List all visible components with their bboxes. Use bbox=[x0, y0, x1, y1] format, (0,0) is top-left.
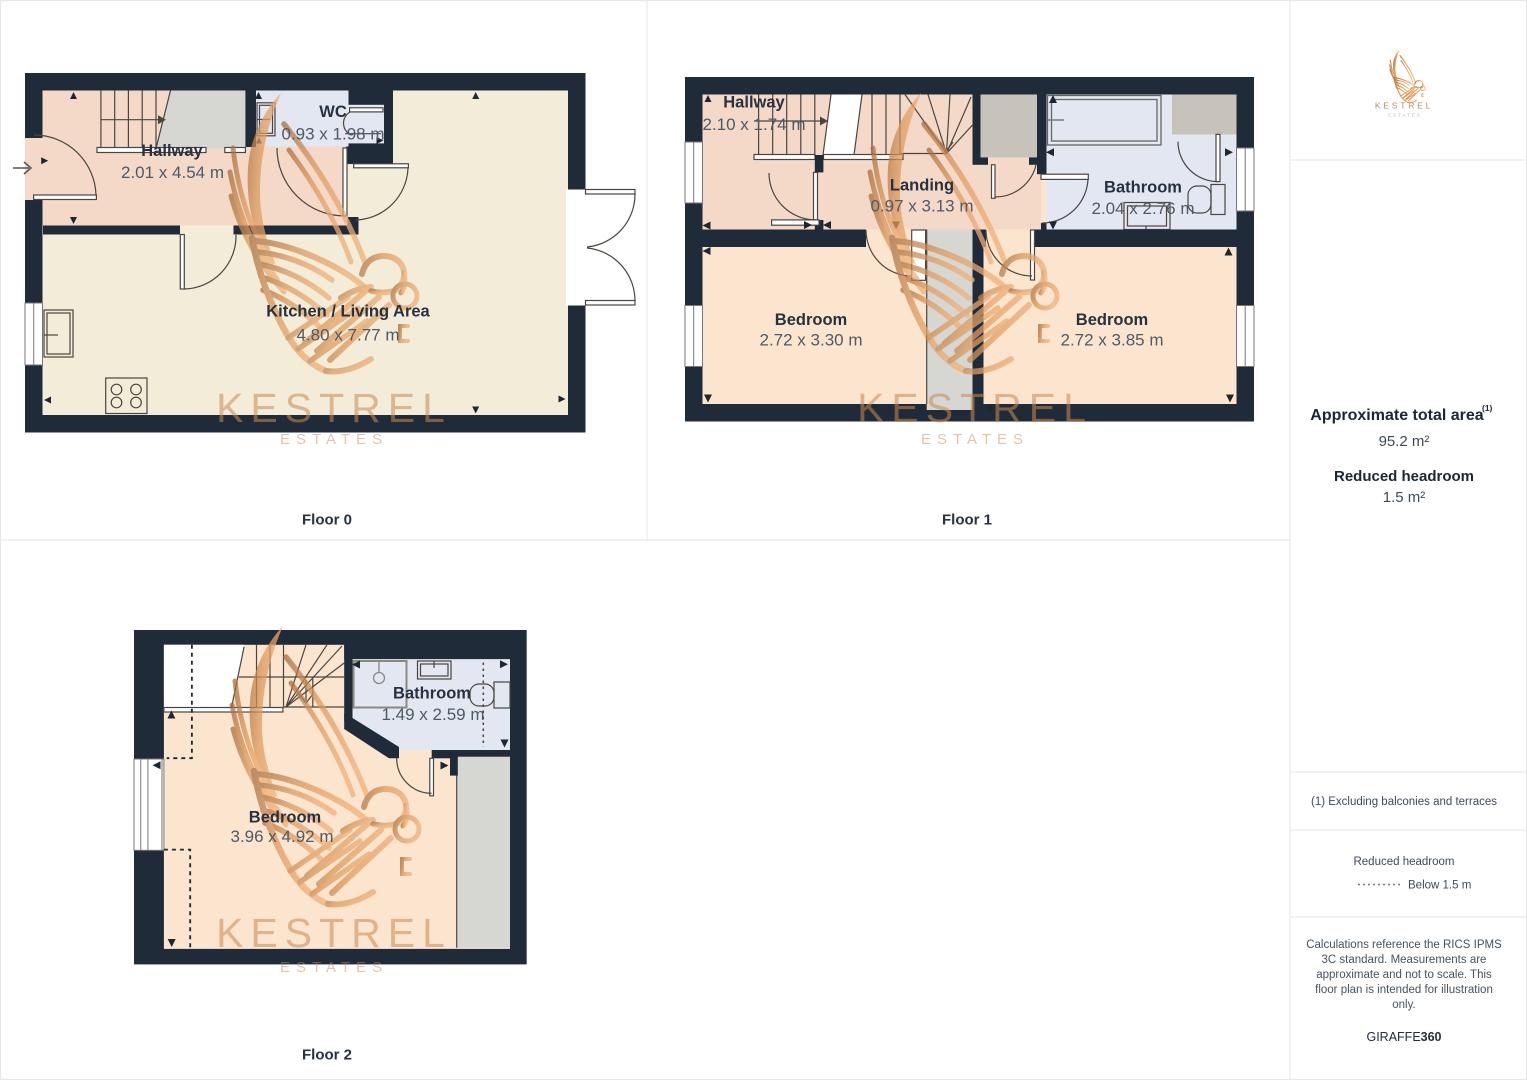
svg-text:Hallway: Hallway bbox=[141, 142, 203, 160]
svg-text:ESTATES: ESTATES bbox=[280, 431, 388, 448]
svg-text:Calculations reference the RIC: Calculations reference the RICS IPMS bbox=[1306, 939, 1502, 951]
svg-text:ESTATES: ESTATES bbox=[921, 431, 1029, 448]
svg-text:(1) Excluding balconies and te: (1) Excluding balconies and terraces bbox=[1311, 796, 1497, 808]
svg-text:3.96 x 4.92 m: 3.96 x 4.92 m bbox=[230, 827, 333, 846]
svg-text:Floor 0: Floor 0 bbox=[302, 512, 352, 529]
svg-text:1.49 x 2.59 m: 1.49 x 2.59 m bbox=[381, 705, 484, 724]
svg-text:Bathroom: Bathroom bbox=[393, 685, 471, 703]
svg-text:KESTREL: KESTREL bbox=[857, 385, 1093, 431]
svg-text:WC: WC bbox=[319, 103, 347, 121]
svg-text:Bedroom: Bedroom bbox=[775, 311, 847, 329]
svg-text:ESTATES: ESTATES bbox=[1388, 113, 1422, 118]
svg-text:ESTATES: ESTATES bbox=[280, 959, 388, 976]
svg-text:2.72 x 3.85 m: 2.72 x 3.85 m bbox=[1060, 331, 1163, 350]
svg-text:Bedroom: Bedroom bbox=[249, 809, 321, 827]
svg-text:KESTREL: KESTREL bbox=[1375, 101, 1433, 111]
svg-text:1.5 m²: 1.5 m² bbox=[1383, 489, 1426, 506]
svg-text:2.01 x 4.54 m: 2.01 x 4.54 m bbox=[121, 163, 224, 182]
svg-text:95.2 m²: 95.2 m² bbox=[1379, 433, 1430, 450]
svg-text:floor plan is intended for ill: floor plan is intended for illustration bbox=[1315, 984, 1493, 996]
svg-text:0.97 x 3.13 m: 0.97 x 3.13 m bbox=[870, 197, 973, 216]
svg-text:3C standard. Measurements are: 3C standard. Measurements are bbox=[1322, 954, 1487, 966]
svg-text:KESTREL: KESTREL bbox=[216, 385, 452, 431]
svg-text:approximate and not to scale.: approximate and not to scale. This bbox=[1316, 969, 1492, 981]
svg-text:GIRAFFE360: GIRAFFE360 bbox=[1366, 1030, 1441, 1044]
svg-text:Approximate total area: Approximate total area bbox=[1310, 407, 1483, 424]
svg-text:Reduced headroom: Reduced headroom bbox=[1334, 468, 1474, 485]
svg-text:2.10 x 1.74 m: 2.10 x 1.74 m bbox=[702, 115, 805, 134]
svg-text:Floor 2: Floor 2 bbox=[302, 1047, 352, 1064]
svg-text:2.72 x 3.30 m: 2.72 x 3.30 m bbox=[759, 331, 862, 350]
svg-text:only.: only. bbox=[1392, 999, 1415, 1011]
svg-text:Bedroom: Bedroom bbox=[1076, 311, 1148, 329]
svg-text:4.80 x 7.77 m: 4.80 x 7.77 m bbox=[296, 326, 399, 345]
svg-text:0.93 x 1.98 m: 0.93 x 1.98 m bbox=[281, 125, 384, 144]
svg-text:Bathroom: Bathroom bbox=[1104, 179, 1182, 197]
svg-text:Kitchen / Living Area: Kitchen / Living Area bbox=[266, 303, 430, 321]
svg-text:Hallway: Hallway bbox=[723, 94, 785, 112]
svg-text:Below 1.5 m: Below 1.5 m bbox=[1408, 880, 1471, 892]
svg-text:KESTREL: KESTREL bbox=[216, 910, 452, 956]
svg-text:(1): (1) bbox=[1482, 403, 1493, 413]
svg-text:Floor 1: Floor 1 bbox=[942, 512, 992, 529]
svg-text:Reduced headroom: Reduced headroom bbox=[1353, 856, 1454, 868]
svg-text:2.04 x 2.76 m: 2.04 x 2.76 m bbox=[1091, 199, 1194, 218]
svg-text:Landing: Landing bbox=[890, 177, 954, 195]
